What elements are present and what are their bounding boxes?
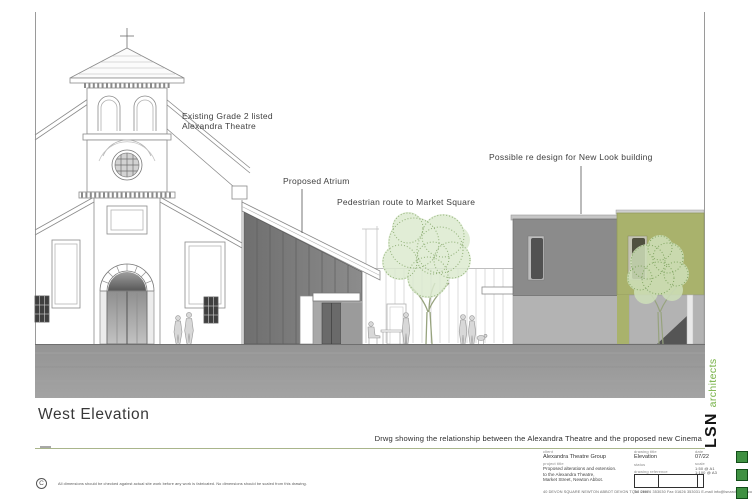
atrium-column: [300, 296, 313, 344]
firm-suffix: architects: [707, 358, 719, 407]
micro-annotation: [40, 446, 51, 449]
project-line: Proposed alterations and extension.: [543, 466, 616, 471]
drawing-reference-box: [634, 474, 704, 488]
green-square-icon: [736, 487, 748, 499]
copyright-icon: C: [36, 478, 47, 489]
client-name: Alexandra Theatre Group: [543, 454, 606, 460]
date-value: 07/22: [695, 454, 709, 460]
practice-contact: Tel 01626 353030 Fax 01626 353031 E-mail…: [634, 490, 752, 494]
drawing-sheet: Existing Grade 2 listed Alexandra Theatr…: [0, 0, 752, 501]
label-proposed-atrium: Proposed Atrium: [283, 177, 350, 187]
elevation-drawing: [0, 0, 752, 501]
green-square-icon: [736, 451, 748, 463]
label-existing-theatre: Existing Grade 2 listed Alexandra Theatr…: [182, 112, 273, 131]
rose-window: [112, 150, 142, 180]
entrance-arch: [100, 264, 154, 344]
green-square-icon: [736, 469, 748, 481]
drawing-title: West Elevation: [38, 406, 150, 424]
ground-strip: [35, 344, 705, 398]
figures-at-church: [174, 312, 193, 343]
proposed-atrium: [242, 202, 380, 344]
firm-name: LSN: [703, 412, 721, 448]
side-window-right: [204, 297, 218, 323]
drawing-caption: Drwg showing the relationship between th…: [375, 434, 702, 443]
alexandra-theatre: [35, 28, 250, 344]
disclaimer-text: All dimensions should be checked against…: [58, 482, 307, 486]
drawing-title-value: Elevation: [634, 454, 657, 460]
project-line: to the Alexandra Theatre,: [543, 472, 595, 477]
side-window-left: [35, 296, 49, 322]
title-block-rule: [35, 448, 705, 449]
label-pedestrian-route: Pedestrian route to Market Square: [337, 198, 475, 208]
label-new-look: Possible re design for New Look building: [489, 153, 653, 163]
scale-value: 1:100 @ A3: [695, 470, 717, 475]
practice-address: 40 DEVON SQUARE NEWTON ABBOT DEVON TQ12 …: [543, 490, 648, 494]
cinema-building: [511, 215, 620, 344]
atrium-canopy: [313, 293, 360, 301]
status-label: status: [634, 462, 645, 467]
lsn-architects-logo: LSN architects: [703, 358, 721, 448]
project-line: Market Street, Newton Abbot.: [543, 477, 603, 482]
